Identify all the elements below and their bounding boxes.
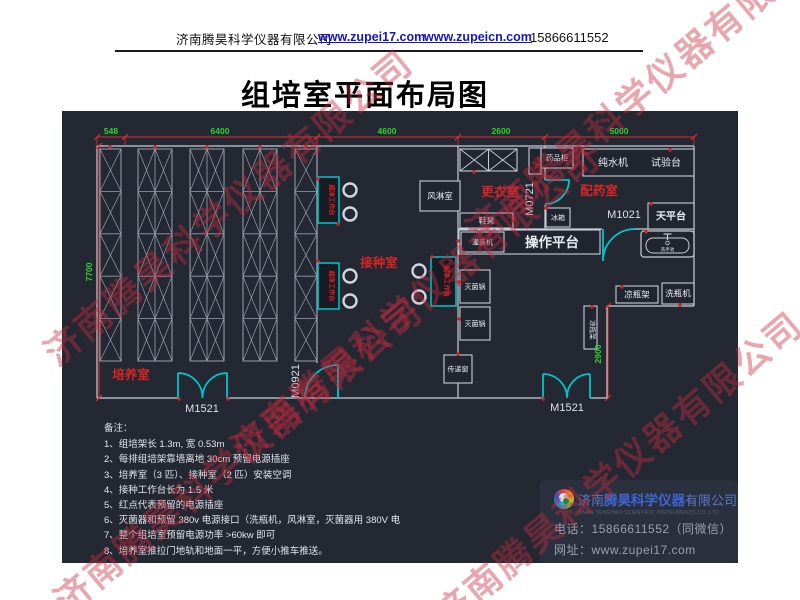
preparation-room-label: 配药室 [580,183,618,198]
medicine-cabinet-label: 药品柜 [546,153,569,163]
power-socket-dot [581,166,584,169]
power-socket-dot [316,259,319,262]
power-socket-dot [304,145,307,148]
power-socket-dot [456,352,459,355]
company-phone: 电话：15866611552（同微信） [554,520,737,537]
power-socket-dot [544,206,547,209]
company-name: 济南腾昊科学仪器有限公司 [578,489,737,509]
clean-bench-1-label: 超净工作台 [328,184,336,216]
power-socket-dot [668,148,671,151]
bottle-washer-label: 洗瓶机 [665,289,691,299]
dimension-value: 2900 [593,344,603,363]
header-phone: 15866611552 [530,30,609,45]
note-line-6: 6、灭菌器和预留 380v 电源接口（洗瓶机，风淋室，灭菌器用 380V 电 [104,513,400,528]
dimension-value: 2600 [492,126,511,136]
changing-room-label: 更衣室 [481,184,519,199]
power-socket-dot [649,202,652,205]
dimension-value: 4600 [378,126,397,136]
operation-platform-label: 操作平台 [525,234,579,250]
sterilizer-2-label: 灭菌锅 [465,319,486,328]
inoculation-room-label: 接种室 [360,255,398,270]
dimension-value: 5000 [610,126,629,136]
company-logo-icon [554,489,574,509]
page-title: 组培室平面布局图 [215,72,515,114]
power-socket-dot [620,285,623,288]
power-socket-dot [205,145,208,148]
stool [344,270,357,283]
power-socket-dot [177,397,180,400]
water-purifier-bench-label: 试验台 [651,156,681,169]
power-socket-dot [472,170,475,173]
door-m1521-right [543,374,590,398]
company-block: 济南腾昊科学仪器有限公司 JINAN TENGHAO SCIENTIFIC IN… [554,489,737,558]
power-socket-dot [430,255,433,258]
stool [413,291,426,304]
door-m0721 [545,180,569,204]
door-label-M1521: M1521 [185,403,219,415]
door-label-M1021: M1021 [607,209,641,221]
note-line-5: 5、红点代表预留的电源插座 [104,498,400,513]
power-socket-dot [336,222,339,225]
fridge-label: 冰箱 [551,213,565,222]
power-socket-dot [258,145,261,148]
power-socket-dot [511,219,514,222]
power-socket-dot [644,230,647,233]
company-subtitle: JINAN TENGHAO SCIENTIFIC INSTRUMENTS CO.… [578,510,737,516]
power-socket-dot [226,397,229,400]
wardrobe-label: 衣柜 [533,157,541,169]
company-website[interactable]: 网址：www.zupei17.com [554,541,737,558]
clean-bench-2-label: 超净工作台 [328,270,336,302]
power-socket-dot [590,305,593,308]
header-link-zupei17[interactable]: www.zupei17.com [318,30,425,44]
dimension-value: 6400 [211,126,230,136]
stool [344,295,357,308]
door-label-M0721: M0721 [524,182,536,216]
note-line-1: 1、组培架长 1.3m, 宽 0.53m [104,437,400,452]
power-socket-dot [108,145,111,148]
power-socket-dot [457,317,460,320]
power-socket-dot [541,397,544,400]
door-m0921 [305,365,338,398]
door-prep [603,229,635,261]
notes-heading: 备注： [104,421,400,436]
stool [344,184,357,197]
door-label-M0921: M0921 [290,364,302,398]
power-socket-dot [153,145,156,148]
cultivation-room-label: 培养室 [112,367,150,382]
stool [413,265,426,278]
note-line-4: 4、接种工作台长为 1.5 米 [104,483,400,498]
note-line-3: 3、培养室（3 匹）、接种室（2 匹）安装空调 [104,468,400,483]
header-divider [115,50,643,52]
power-socket-dot [457,280,460,283]
bottle-cooling-rack-h-label: 凉瓶架 [624,290,650,300]
header-company-name: 济南腾昊科学仪器有限公司 [176,29,332,48]
sterilizer-1-label: 灭菌锅 [465,282,486,291]
note-line-7: 7、整个组培室预留电源功率 >60kw 即可 [104,528,400,543]
transfer-window-label: 传递窗 [448,365,469,374]
page: 济南腾昊科学仪器有限公司 www.zupei17.com www.zupeicn… [0,0,800,600]
bottle-cooling-rack-v-label: 凉瓶架 [589,320,598,340]
dimension-value: 7700 [84,262,94,281]
notes-block: 备注： 1、组培架长 1.3m, 宽 0.53m2、每排组培架靠墙离地 30cm… [104,421,400,559]
air-shower-room-label: 风淋室 [427,191,453,201]
water-purifier-bench-label: 纯水机 [598,156,628,169]
balance-table-label: 天平台 [656,210,686,223]
power-socket-dot [316,177,319,180]
clean-bench-3-label: 超净工作台 [443,265,451,297]
door-label-M1521: M1521 [550,402,584,414]
door-m1521-left [178,373,227,398]
note-line-8: 8、培养室推拉门地轨和地面一平，方便小推车推送。 [104,544,400,559]
power-socket-dot [678,303,681,306]
filling-machine-label: 灌装机 [472,238,493,247]
dimension-value: 548 [104,126,118,136]
hand-wash-sink-label: 洗手池 [661,246,675,253]
note-line-2: 2、每排组培架靠墙离地 30cm 预留电源插座 [104,452,400,467]
header-link-zupeicn[interactable]: www.zupeicn.com [424,30,532,44]
power-socket-dot [456,239,459,242]
shoe-bench-label: 鞋凳 [479,215,495,225]
stool [344,208,357,221]
